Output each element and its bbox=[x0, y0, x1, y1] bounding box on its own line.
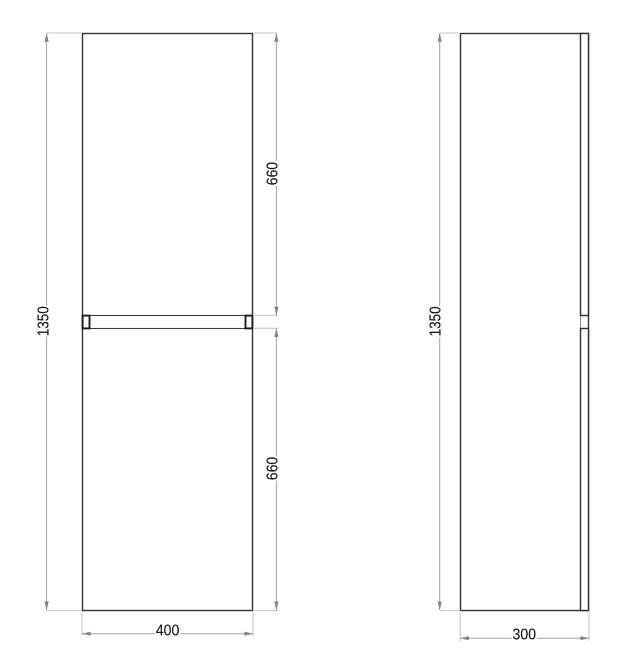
svg-text:660: 660 bbox=[264, 456, 281, 480]
svg-text:400: 400 bbox=[156, 623, 180, 640]
svg-text:1350: 1350 bbox=[428, 306, 445, 336]
svg-text:660: 660 bbox=[264, 162, 281, 186]
svg-text:1350: 1350 bbox=[36, 306, 53, 336]
svg-text:300: 300 bbox=[513, 626, 537, 643]
